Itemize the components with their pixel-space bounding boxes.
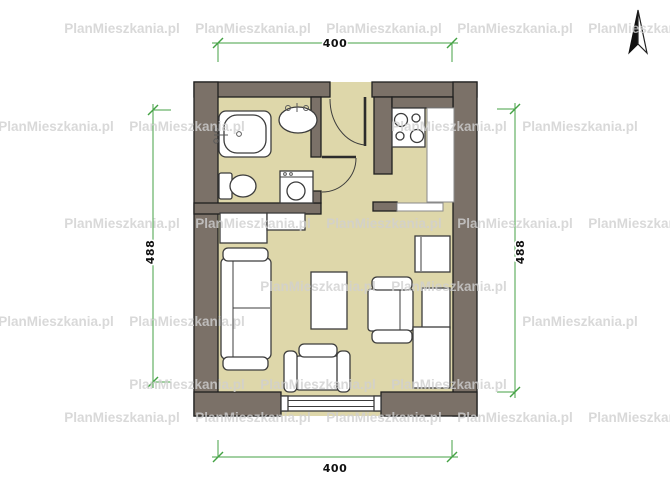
- wall-kitchen-top-strip: [392, 97, 453, 108]
- watermark-text: PlanMieszkania.pl: [0, 119, 114, 134]
- watermark-text: PlanMieszkania.pl: [522, 119, 638, 134]
- watermark-text: PlanMieszkania.pl: [129, 314, 245, 329]
- watermark-text: PlanMieszkania.pl: [260, 279, 376, 294]
- watermark-text: PlanMieszkania.pl: [129, 377, 245, 392]
- washing-machine-icon: [280, 171, 313, 203]
- watermark-text: PlanMieszkania.pl: [0, 314, 114, 329]
- cabinet-right-mid: [422, 288, 450, 328]
- sofa-icon: [221, 248, 271, 370]
- watermark-text: PlanMieszkania.pl: [588, 216, 670, 231]
- sideboard-right-top: [415, 236, 450, 272]
- watermark-text: PlanMieszkania.pl: [326, 21, 442, 36]
- kitchen-pass-shelf: [397, 203, 443, 211]
- watermark-text: PlanMieszkania.pl: [391, 279, 507, 294]
- toilet-icon: [219, 173, 256, 199]
- watermark-text: PlanMieszkania.pl: [588, 21, 670, 36]
- floor-plan: 400 400 488 488 PlanMieszkania.pl PlanMi…: [0, 0, 670, 502]
- watermark-text: PlanMieszkania.pl: [195, 410, 311, 425]
- watermark-text: PlanMieszkania.pl: [391, 377, 507, 392]
- watermark-text: PlanMieszkania.pl: [260, 377, 376, 392]
- watermark-text: PlanMieszkania.pl: [588, 410, 670, 425]
- watermark-text: PlanMieszkania.pl: [391, 119, 507, 134]
- watermark-text: PlanMieszkania.pl: [64, 410, 180, 425]
- watermark-text: PlanMieszkania.pl: [195, 216, 311, 231]
- watermark-text: PlanMieszkania.pl: [522, 314, 638, 329]
- watermark-text: PlanMieszkania.pl: [64, 21, 180, 36]
- watermark-text: PlanMieszkania.pl: [457, 410, 573, 425]
- dimension-bottom: [212, 440, 458, 462]
- watermark-text: PlanMieszkania.pl: [326, 410, 442, 425]
- bathtub-icon: [214, 111, 271, 157]
- dimension-label-left: 488: [144, 240, 157, 264]
- watermark-text: PlanMieszkania.pl: [129, 119, 245, 134]
- watermark-text: PlanMieszkania.pl: [64, 216, 180, 231]
- watermark-text: PlanMieszkania.pl: [195, 21, 311, 36]
- watermark-text: PlanMieszkania.pl: [457, 216, 573, 231]
- window-icon: [281, 396, 381, 411]
- watermark-text: PlanMieszkania.pl: [457, 21, 573, 36]
- wall-kitchen-living-stub: [373, 202, 397, 211]
- dimension-label-bottom: 400: [323, 462, 347, 475]
- dimension-label-right: 488: [514, 240, 527, 264]
- wall-kitchen-divider: [374, 97, 392, 174]
- dimension-label-top: 400: [323, 37, 347, 50]
- watermark-text: PlanMieszkania.pl: [326, 216, 442, 231]
- floor-plan-canvas: 400 400 488 488 PlanMieszkania.pl PlanMi…: [0, 0, 670, 502]
